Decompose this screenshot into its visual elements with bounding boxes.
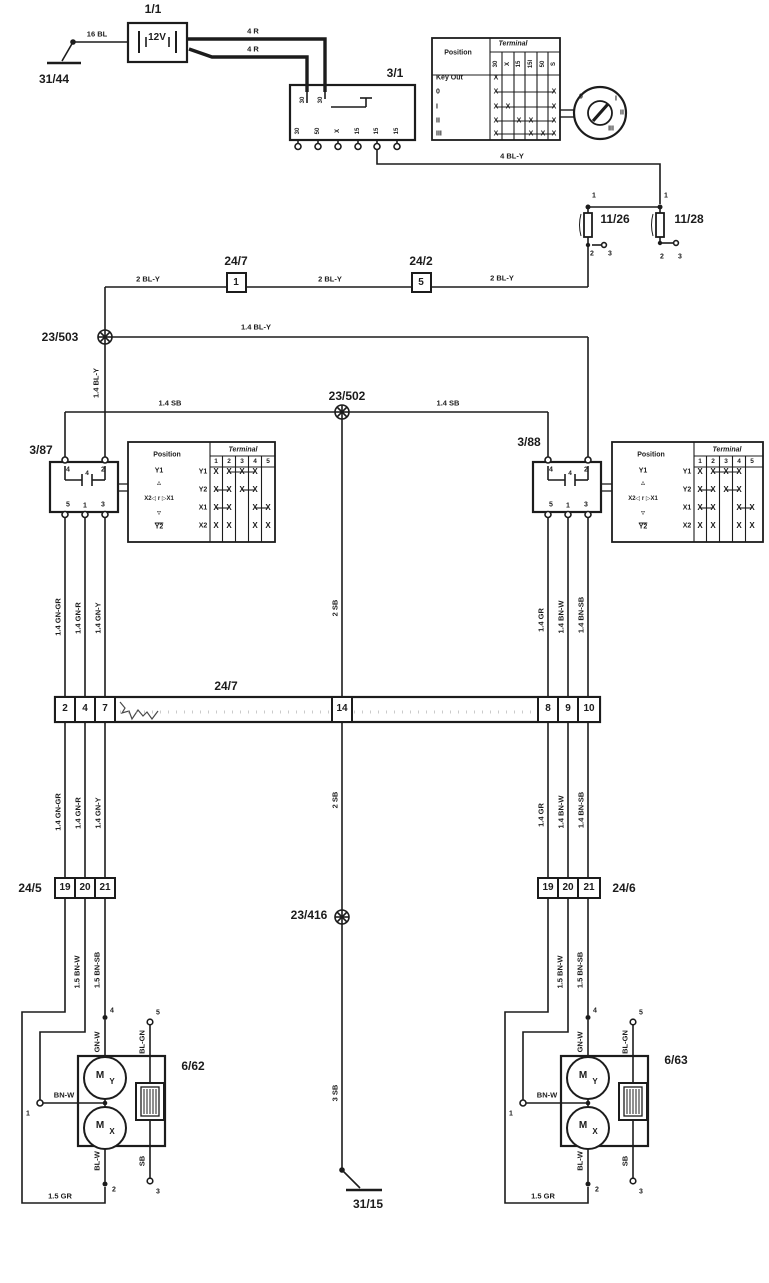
motor-left-x-m: M bbox=[96, 1121, 104, 1131]
wire-label-2-bl-y-b: 2 BL-Y bbox=[318, 275, 342, 283]
motor-right-y-sub: Y bbox=[592, 1078, 597, 1086]
relay-table-3-88-mark: X bbox=[710, 504, 715, 512]
mirror-left-id: 6/62 bbox=[181, 1060, 204, 1072]
wire-label-1-5-bn-sb-right: 1.5 BN-SB bbox=[576, 952, 584, 988]
ground-31-15-label: 31/15 bbox=[353, 1198, 383, 1210]
relay-3-87-pin-4: 4 bbox=[66, 467, 70, 474]
motor-left-x-sub: X bbox=[109, 1128, 114, 1136]
connector-24-7-pin-10: 10 bbox=[583, 704, 594, 714]
wire-label-2-bl-y-a: 2 BL-Y bbox=[136, 275, 160, 283]
wire-label-1-4-bl-y-h: 1.4 BL-Y bbox=[241, 323, 271, 331]
relay-table-3-88-mark: X bbox=[723, 486, 728, 494]
connector-24-2-id: 24/2 bbox=[409, 255, 432, 267]
relay-table-3-87-col-4: 5 bbox=[266, 459, 270, 466]
relay-table-3-87-mark: X bbox=[265, 504, 270, 512]
wire-label-1-4-gn-r-lower: 1.4 GN-R bbox=[74, 797, 82, 829]
wire-label-1-5-gr-left: 1.5 GR bbox=[48, 1192, 72, 1200]
relay-table-3-87-mark: X bbox=[239, 486, 244, 494]
relay-table-3-87-mark: X bbox=[226, 486, 231, 494]
connector-24-5-pin-21: 21 bbox=[99, 883, 110, 893]
relay-table-3-87-mark: X bbox=[252, 486, 257, 494]
relay-table-3-88-col-3: 4 bbox=[737, 459, 741, 466]
mirror-right-pin-4: 4 bbox=[593, 1008, 597, 1015]
ground-31-44-label: 31/44 bbox=[39, 73, 69, 85]
wire-label-sb-right: SB bbox=[621, 1156, 629, 1166]
connector-24-6-id: 24/6 bbox=[612, 882, 635, 894]
splice-23-503-id: 23/503 bbox=[42, 331, 79, 343]
connector-24-6-pin-20: 20 bbox=[562, 883, 573, 893]
wire-label-4-r-lower: 4 R bbox=[247, 45, 259, 53]
mirror-left-pin-2: 2 bbox=[112, 1187, 116, 1194]
relay-table-3-88-mark: X bbox=[697, 468, 702, 476]
ignition-pin-top-1: 30 bbox=[300, 97, 306, 104]
relay-table-3-87-mark: X bbox=[226, 468, 231, 476]
ignition-table-col-1: X bbox=[505, 62, 511, 66]
wire-label-1-4-gn-y-lower: 1.4 GN-Y bbox=[94, 797, 102, 828]
ignition-table-mark: X bbox=[552, 89, 557, 96]
fuse-11-28-id: 11/28 bbox=[674, 213, 703, 225]
mirror-left-pin-4: 4 bbox=[110, 1008, 114, 1015]
relay-table-3-88-mark: X bbox=[710, 522, 715, 530]
relay-3-88-pin-1: 1 bbox=[566, 503, 570, 510]
relay-table-3-88-mark: X bbox=[697, 486, 702, 494]
relay-table-3-87-mark: X bbox=[252, 468, 257, 476]
wire-label-1-4-gr-lower: 1.4 GR bbox=[537, 803, 545, 827]
relay-table-3-87-mark: X bbox=[213, 522, 218, 530]
relay-table-3-88-col-0: 1 bbox=[698, 459, 702, 466]
wire-label-1-5-bn-sb-left: 1.5 BN-SB bbox=[93, 952, 101, 988]
fuse-11-28-pin-3: 3 bbox=[678, 254, 682, 261]
relay-table-3-87-mark: X bbox=[252, 504, 257, 512]
connector-24-7-pin-8: 8 bbox=[545, 704, 551, 714]
relay-table-3-87-row-label-1: Y2 bbox=[199, 487, 208, 494]
wire-label-1-4-bn-sb-upper: 1.4 BN-SB bbox=[577, 597, 585, 633]
ignition-table-mark: X bbox=[517, 118, 522, 125]
ignition-table-col-2: 15 bbox=[516, 61, 522, 68]
relay-table-3-88-mark: X bbox=[697, 522, 702, 530]
splice-23-502-id: 23/502 bbox=[329, 390, 366, 402]
motor-right-x-sub: X bbox=[592, 1128, 597, 1136]
relay-3-87-pin-1: 1 bbox=[83, 503, 87, 510]
ignition-pin-4: 15 bbox=[355, 128, 361, 135]
relay-table-3-87-mark: X bbox=[252, 522, 257, 530]
relay-table-3-88-row-label-1: Y2 bbox=[683, 487, 692, 494]
relay-table-3-87-row-label-2: X1 bbox=[199, 505, 208, 512]
wire-label-bn-w-right: BN-W bbox=[537, 1091, 557, 1099]
ignition-table-mark: X bbox=[529, 131, 534, 138]
relay-table-3-87-mark: X bbox=[226, 522, 231, 530]
ignition-table-col-4: 50 bbox=[540, 61, 546, 68]
ignition-table-row-label-3: II bbox=[436, 118, 440, 125]
wire-label-16-bl: 16 BL bbox=[87, 30, 107, 38]
connector-24-7-inline-id: 24/7 bbox=[224, 255, 247, 267]
wire-label-bl-w-left: BL-W bbox=[93, 1151, 101, 1171]
relay-table-3-88-row-label-3: X2 bbox=[683, 523, 692, 530]
ignition-table-mark: X bbox=[494, 104, 499, 111]
wire-label-1-4-bn-sb-lower: 1.4 BN-SB bbox=[577, 792, 585, 828]
key-position-0: 0 bbox=[579, 94, 583, 101]
relay-table-3-87-symbol-0: Y1 bbox=[155, 468, 164, 475]
relay-table-3-87-col-3: 4 bbox=[253, 459, 257, 466]
ignition-pin-top-2: 30 bbox=[318, 97, 324, 104]
mirror-left-pin-3: 3 bbox=[156, 1189, 160, 1196]
relay-table-3-88-col-4: 5 bbox=[750, 459, 754, 466]
relay-table-3-88-mark: X bbox=[723, 468, 728, 476]
wire-label-4-r-upper: 4 R bbox=[247, 27, 259, 35]
wire-label-1-4-sb-b: 1.4 SB bbox=[437, 399, 460, 407]
ignition-table-row-label-0: Key Out bbox=[436, 75, 463, 82]
relay-table-3-88-mark: X bbox=[749, 504, 754, 512]
ignition-table-row-label-1: 0 bbox=[436, 89, 440, 96]
motor-left-y-sub: Y bbox=[109, 1078, 114, 1086]
mirror-right-pin-3: 3 bbox=[639, 1189, 643, 1196]
relay-table-3-87-mark: X bbox=[213, 468, 218, 476]
relay-table-3-88-row-label-2: X1 bbox=[683, 505, 692, 512]
mirror-right-pin-5: 5 bbox=[639, 1010, 643, 1017]
fuse-11-26-pin-3: 3 bbox=[608, 251, 612, 258]
wire-label-1-4-gn-r-upper: 1.4 GN-R bbox=[74, 602, 82, 634]
relay-table-3-87-mark: X bbox=[213, 504, 218, 512]
fuse-11-26-id: 11/26 bbox=[600, 213, 629, 225]
relay-table-3-87-mark: X bbox=[239, 468, 244, 476]
connector-24-5-pin-20: 20 bbox=[79, 883, 90, 893]
connector-24-7-id: 24/7 bbox=[214, 680, 237, 692]
relay-table-3-87-col-0: 1 bbox=[214, 459, 218, 466]
key-position-iii: III bbox=[608, 126, 614, 133]
labels-layer: Position Terminal 31/4416 BL1/112V4 R4 R… bbox=[0, 0, 769, 1283]
wire-label-1-4-bn-w-lower: 1.4 BN-W bbox=[557, 796, 565, 829]
relay-3-87-id: 3/87 bbox=[29, 444, 52, 456]
relay-3-88-coil-4: 4 bbox=[568, 471, 572, 478]
connector-24-6-pin-21: 21 bbox=[583, 883, 594, 893]
relay-3-88-id: 3/88 bbox=[517, 436, 540, 448]
relay-table-3-88-mark: X bbox=[710, 486, 715, 494]
relay-table-3-87-row-label-0: Y1 bbox=[199, 469, 208, 476]
wire-label-bn-w-left: BN-W bbox=[54, 1091, 74, 1099]
wire-label-bl-gn-right: BL-GN bbox=[621, 1030, 629, 1054]
ignition-table-mark: X bbox=[494, 89, 499, 96]
ignition-pin-3: X bbox=[335, 129, 341, 133]
ignition-table-row-label-4: III bbox=[436, 131, 442, 138]
connector-24-7-pin-7: 7 bbox=[102, 704, 108, 714]
relay-table-3-87-symbol-4: Y2 bbox=[155, 524, 164, 531]
wire-label-1-4-gr-upper: 1.4 GR bbox=[537, 608, 545, 632]
wire-label-1-4-sb-a: 1.4 SB bbox=[159, 399, 182, 407]
relay-3-88-pin-5: 5 bbox=[549, 502, 553, 509]
connector-24-7-pin-9: 9 bbox=[565, 704, 571, 714]
ignition-pin-1: 30 bbox=[295, 128, 301, 135]
fuse-11-28-pin-2: 2 bbox=[660, 254, 664, 261]
key-position-ii: II bbox=[620, 110, 624, 117]
ignition-table-col-0: 30 bbox=[493, 61, 499, 68]
connector-24-6-pin-19: 19 bbox=[542, 883, 553, 893]
ignition-table-col-5: S bbox=[551, 62, 557, 66]
fuse-11-26-pin-1: 1 bbox=[592, 193, 596, 200]
ignition-table-mark: X bbox=[552, 131, 557, 138]
mirror-left-pin-5: 5 bbox=[156, 1010, 160, 1017]
wire-label-1-4-gn-gr-upper: 1.4 GN-GR bbox=[54, 598, 62, 636]
wire-label-1-5-gr-right: 1.5 GR bbox=[531, 1192, 555, 1200]
ignition-pin-2: 50 bbox=[315, 128, 321, 135]
relay-table-3-87-symbol-2: X2◁ r ▷X1 bbox=[144, 496, 174, 502]
motor-right-y-m: M bbox=[579, 1071, 587, 1081]
connector-24-5-id: 24/5 bbox=[18, 882, 41, 894]
relay-table-3-87-symbol-1: ▵ bbox=[157, 479, 161, 487]
key-position-i: I bbox=[615, 96, 617, 103]
relay-table-3-87-mark: X bbox=[213, 486, 218, 494]
fuse-11-28-pin-1: 1 bbox=[664, 193, 668, 200]
relay-table-3-88-col-2: 3 bbox=[724, 459, 728, 466]
connector-24-7-pin-4: 4 bbox=[82, 704, 88, 714]
relay-3-87-pin-2: 2 bbox=[101, 467, 105, 474]
wiring-diagram-page: Position Terminal 31/4416 BL1/112V4 R4 R… bbox=[0, 0, 769, 1283]
relay-table-3-87-symbol-3: ▿ bbox=[157, 509, 161, 517]
ignition-table-terminal-header: Terminal bbox=[499, 41, 528, 48]
wire-label-2-sb-upper: 2 SB bbox=[331, 600, 339, 617]
wire-label-1-4-gn-gr-lower: 1.4 GN-GR bbox=[54, 793, 62, 831]
connector-24-2-pin: 5 bbox=[418, 278, 424, 288]
wire-label-1-4-gn-y-upper: 1.4 GN-Y bbox=[94, 602, 102, 633]
ignition-table-mark: X bbox=[552, 118, 557, 125]
connector-24-7-inline-pin: 1 bbox=[233, 278, 239, 288]
battery-id: 1/1 bbox=[145, 3, 162, 15]
connector-24-5-pin-19: 19 bbox=[59, 883, 70, 893]
wire-label-bl-w-right: BL-W bbox=[576, 1151, 584, 1171]
ignition-table-mark: X bbox=[541, 131, 546, 138]
wire-label-bl-gn-left: BL-GN bbox=[138, 1030, 146, 1054]
relay-table-3-88-terminal-header: Terminal bbox=[713, 447, 742, 454]
relay-table-3-88-symbol-2: X2◁ r ▷X1 bbox=[628, 496, 658, 502]
relay-table-3-87-row-label-3: X2 bbox=[199, 523, 208, 530]
mirror-right-id: 6/63 bbox=[664, 1054, 687, 1066]
relay-table-3-88-symbol-1: ▵ bbox=[641, 479, 645, 487]
ignition-table-mark: X bbox=[506, 104, 511, 111]
relay-3-87-pin-3: 3 bbox=[101, 502, 105, 509]
relay-3-88-pin-2: 2 bbox=[584, 467, 588, 474]
relay-table-3-88-mark: X bbox=[736, 468, 741, 476]
wire-label-1-5-bn-w-left: 1.5 BN-W bbox=[73, 956, 81, 989]
mirror-right-pin-1: 1 bbox=[509, 1111, 513, 1118]
ignition-table-row-label-2: I bbox=[436, 104, 438, 111]
splice-23-416-id: 23/416 bbox=[291, 909, 328, 921]
relay-table-3-88-symbol-0: Y1 bbox=[639, 468, 648, 475]
motor-right-x-m: M bbox=[579, 1121, 587, 1131]
ignition-table-mark: X bbox=[529, 118, 534, 125]
mirror-right-pin-2: 2 bbox=[595, 1187, 599, 1194]
ignition-table-mark: X bbox=[494, 75, 499, 82]
wire-label-gn-w-left: GN-W bbox=[93, 1032, 101, 1053]
relay-table-3-88-mark: X bbox=[736, 486, 741, 494]
wire-label-2-sb-lower: 2 SB bbox=[331, 792, 339, 809]
wire-label-2-bl-y-c: 2 BL-Y bbox=[490, 274, 514, 282]
relay-table-3-87-col-2: 3 bbox=[240, 459, 244, 466]
ignition-switch-id: 3/1 bbox=[387, 67, 404, 79]
relay-3-88-pin-4: 4 bbox=[549, 467, 553, 474]
relay-table-3-88-row-label-0: Y1 bbox=[683, 469, 692, 476]
relay-table-3-87-col-1: 2 bbox=[227, 459, 231, 466]
connector-24-7-pin-2: 2 bbox=[62, 704, 68, 714]
wire-label-1-4-bl-y-v: 1.4 BL-Y bbox=[92, 368, 100, 398]
relay-table-3-87-mark: X bbox=[226, 504, 231, 512]
relay-table-3-87-terminal-header: Terminal bbox=[229, 447, 258, 454]
relay-table-3-87-mark: X bbox=[265, 522, 270, 530]
relay-3-88-pin-3: 3 bbox=[584, 502, 588, 509]
ignition-table-mark: X bbox=[552, 104, 557, 111]
relay-table-3-88-mark: X bbox=[710, 468, 715, 476]
ignition-table-mark: X bbox=[494, 131, 499, 138]
wire-label-gn-w-right: GN-W bbox=[576, 1032, 584, 1053]
wire-label-sb-left: SB bbox=[138, 1156, 146, 1166]
relay-3-87-pin-5: 5 bbox=[66, 502, 70, 509]
ignition-table-mark: X bbox=[494, 118, 499, 125]
relay-table-3-88-col-1: 2 bbox=[711, 459, 715, 466]
wire-label-3-sb: 3 SB bbox=[331, 1085, 339, 1102]
connector-24-7-pin-14: 14 bbox=[336, 704, 347, 714]
relay-table-3-88-mark: X bbox=[736, 522, 741, 530]
wire-label-1-4-bn-w-upper: 1.4 BN-W bbox=[557, 601, 565, 634]
relay-table-3-88-mark: X bbox=[749, 522, 754, 530]
ignition-table-col-3: 15I bbox=[528, 60, 534, 68]
relay-table-3-88-symbol-3: ▿ bbox=[641, 509, 645, 517]
battery-voltage: 12V bbox=[148, 33, 166, 43]
relay-table-3-88-symbol-4: Y2 bbox=[639, 524, 648, 531]
relay-table-3-88-position-header: Position bbox=[637, 452, 665, 459]
ignition-table-position-header: Position bbox=[444, 50, 472, 57]
ignition-pin-5: 15 bbox=[374, 128, 380, 135]
relay-3-87-coil-4: 4 bbox=[85, 471, 89, 478]
wire-label-1-5-bn-w-right: 1.5 BN-W bbox=[556, 956, 564, 989]
fuse-11-26-pin-2: 2 bbox=[590, 251, 594, 258]
ignition-pin-6: 15 bbox=[394, 128, 400, 135]
relay-table-3-88-mark: X bbox=[736, 504, 741, 512]
mirror-left-pin-1: 1 bbox=[26, 1111, 30, 1118]
relay-table-3-88-mark: X bbox=[697, 504, 702, 512]
motor-left-y-m: M bbox=[96, 1071, 104, 1081]
relay-table-3-87-position-header: Position bbox=[153, 452, 181, 459]
wire-label-4-bl-y: 4 BL-Y bbox=[500, 152, 524, 160]
